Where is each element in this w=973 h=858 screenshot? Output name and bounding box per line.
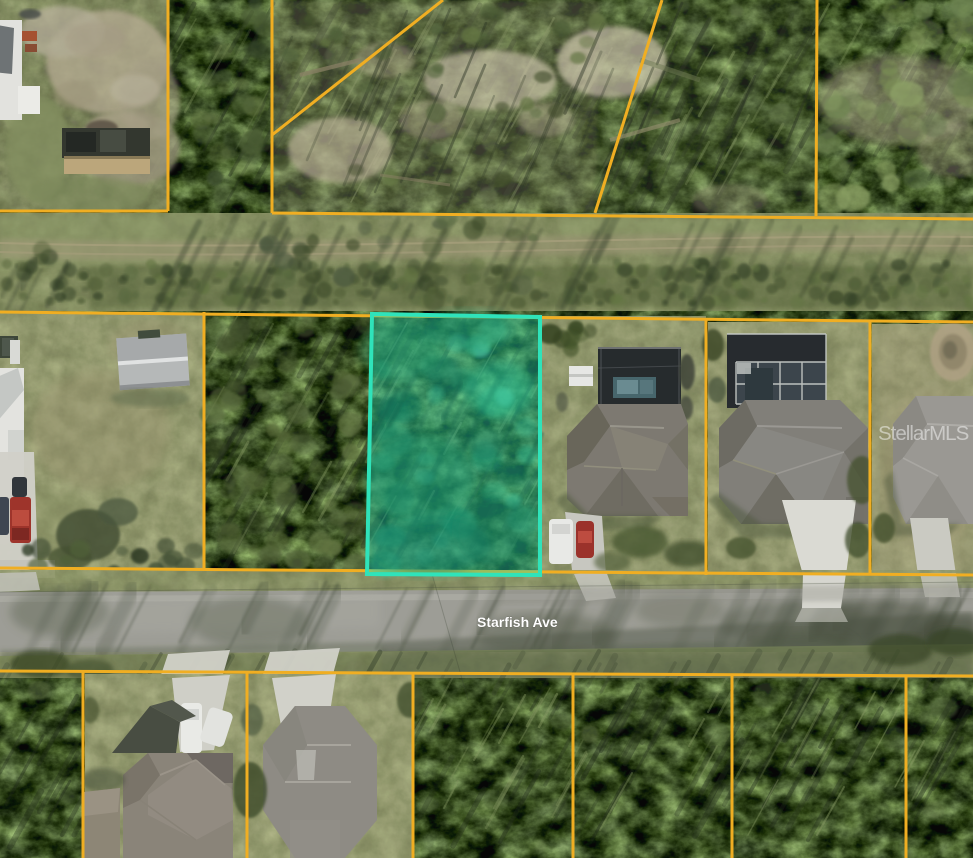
svg-text:StellarMLS: StellarMLS bbox=[878, 422, 969, 445]
svg-text:Starfish Ave: Starfish Ave bbox=[477, 614, 558, 630]
